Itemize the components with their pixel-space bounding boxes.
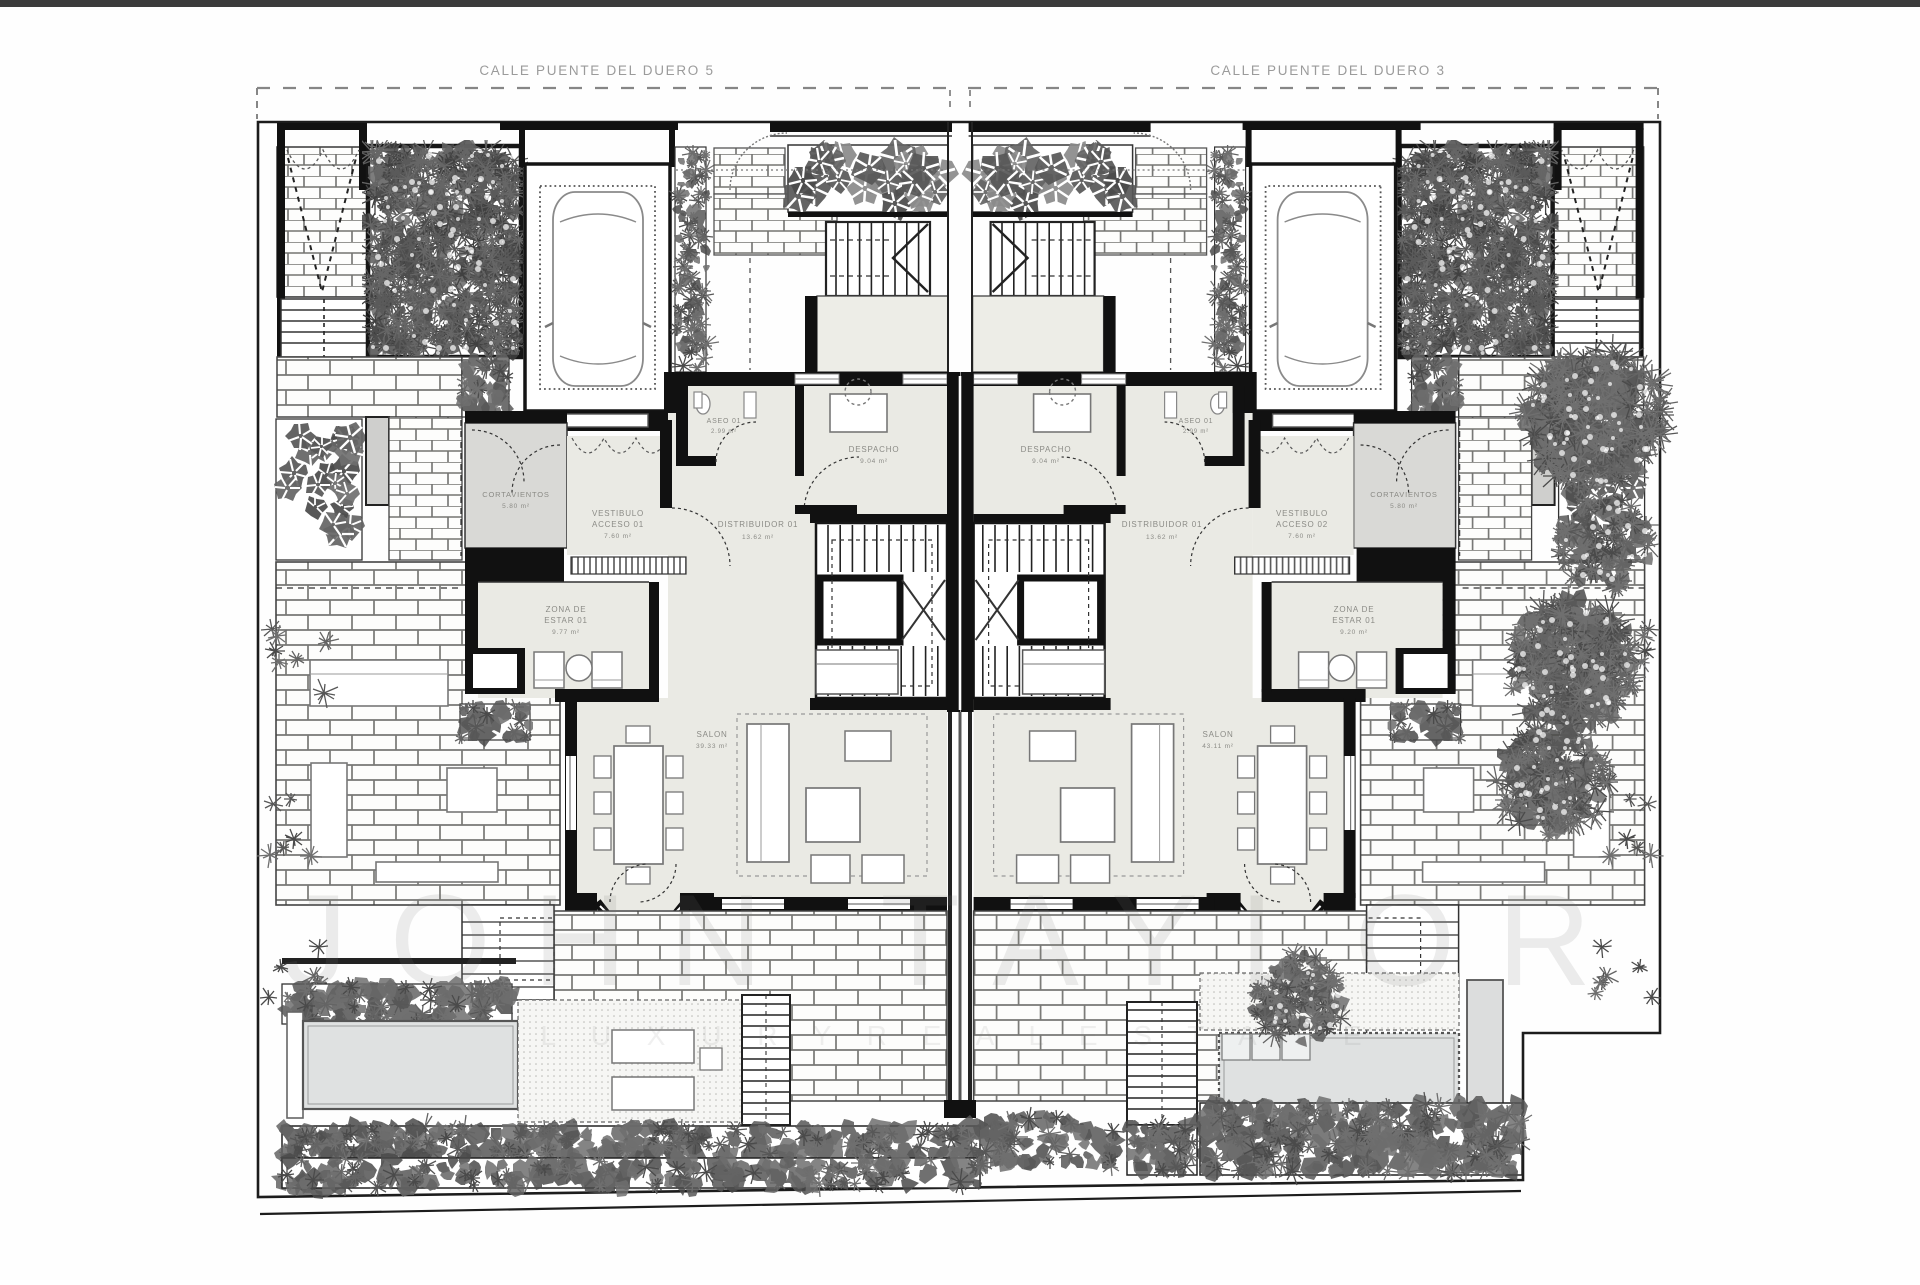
svg-text:CALLE PUENTE DEL DUERO 5: CALLE PUENTE DEL DUERO 5 (479, 63, 714, 78)
svg-text:13.62 m²: 13.62 m² (1146, 534, 1178, 541)
svg-text:ASEO 01: ASEO 01 (707, 418, 742, 425)
svg-text:DESPACHO: DESPACHO (849, 445, 900, 454)
svg-text:DISTRIBUIDOR 01: DISTRIBUIDOR 01 (1122, 520, 1202, 529)
svg-text:2.99 m²: 2.99 m² (711, 429, 737, 435)
svg-text:VESTIBULO: VESTIBULO (1276, 509, 1328, 518)
svg-text:5.80 m²: 5.80 m² (1390, 503, 1418, 510)
svg-text:DISTRIBUIDOR 01: DISTRIBUIDOR 01 (718, 520, 798, 529)
svg-text:CORTAVIENTOS: CORTAVIENTOS (482, 490, 549, 499)
svg-text:SALON: SALON (1202, 730, 1233, 739)
svg-text:5.80 m²: 5.80 m² (502, 503, 530, 510)
svg-text:9.04 m²: 9.04 m² (1032, 458, 1060, 465)
svg-text:CALLE PUENTE DEL DUERO 3: CALLE PUENTE DEL DUERO 3 (1210, 63, 1445, 78)
svg-text:CORTAVIENTOS: CORTAVIENTOS (1370, 490, 1437, 499)
svg-text:JOHN TAYLOR: JOHN TAYLOR (283, 867, 1633, 1013)
svg-text:ASEO 01: ASEO 01 (1179, 418, 1214, 425)
svg-text:7.60 m²: 7.60 m² (1288, 533, 1316, 540)
svg-text:ACCESO 01: ACCESO 01 (592, 520, 644, 529)
svg-text:39.33 m²: 39.33 m² (696, 743, 728, 750)
svg-text:DESPACHO: DESPACHO (1021, 445, 1072, 454)
svg-text:ESTAR 01: ESTAR 01 (1332, 616, 1376, 625)
svg-text:VESTIBULO: VESTIBULO (592, 509, 644, 518)
svg-text:9.04 m²: 9.04 m² (860, 458, 888, 465)
svg-text:9.20 m²: 9.20 m² (1340, 629, 1368, 636)
svg-text:ACCESO 02: ACCESO 02 (1276, 520, 1328, 529)
svg-text:7.60 m²: 7.60 m² (604, 533, 632, 540)
svg-text:9.77 m²: 9.77 m² (552, 629, 580, 636)
svg-text:43.11 m²: 43.11 m² (1202, 743, 1234, 750)
svg-text:ZONA DE: ZONA DE (546, 605, 587, 614)
svg-text:13.62 m²: 13.62 m² (742, 534, 774, 541)
svg-text:2.99 m²: 2.99 m² (1183, 429, 1209, 435)
svg-text:ZONA DE: ZONA DE (1334, 605, 1375, 614)
svg-text:L U X U R Y R E A L E S T: L U X U R Y R E A L E S T A T E (540, 1020, 1375, 1051)
svg-text:SALON: SALON (696, 730, 727, 739)
svg-text:ESTAR 01: ESTAR 01 (544, 616, 588, 625)
